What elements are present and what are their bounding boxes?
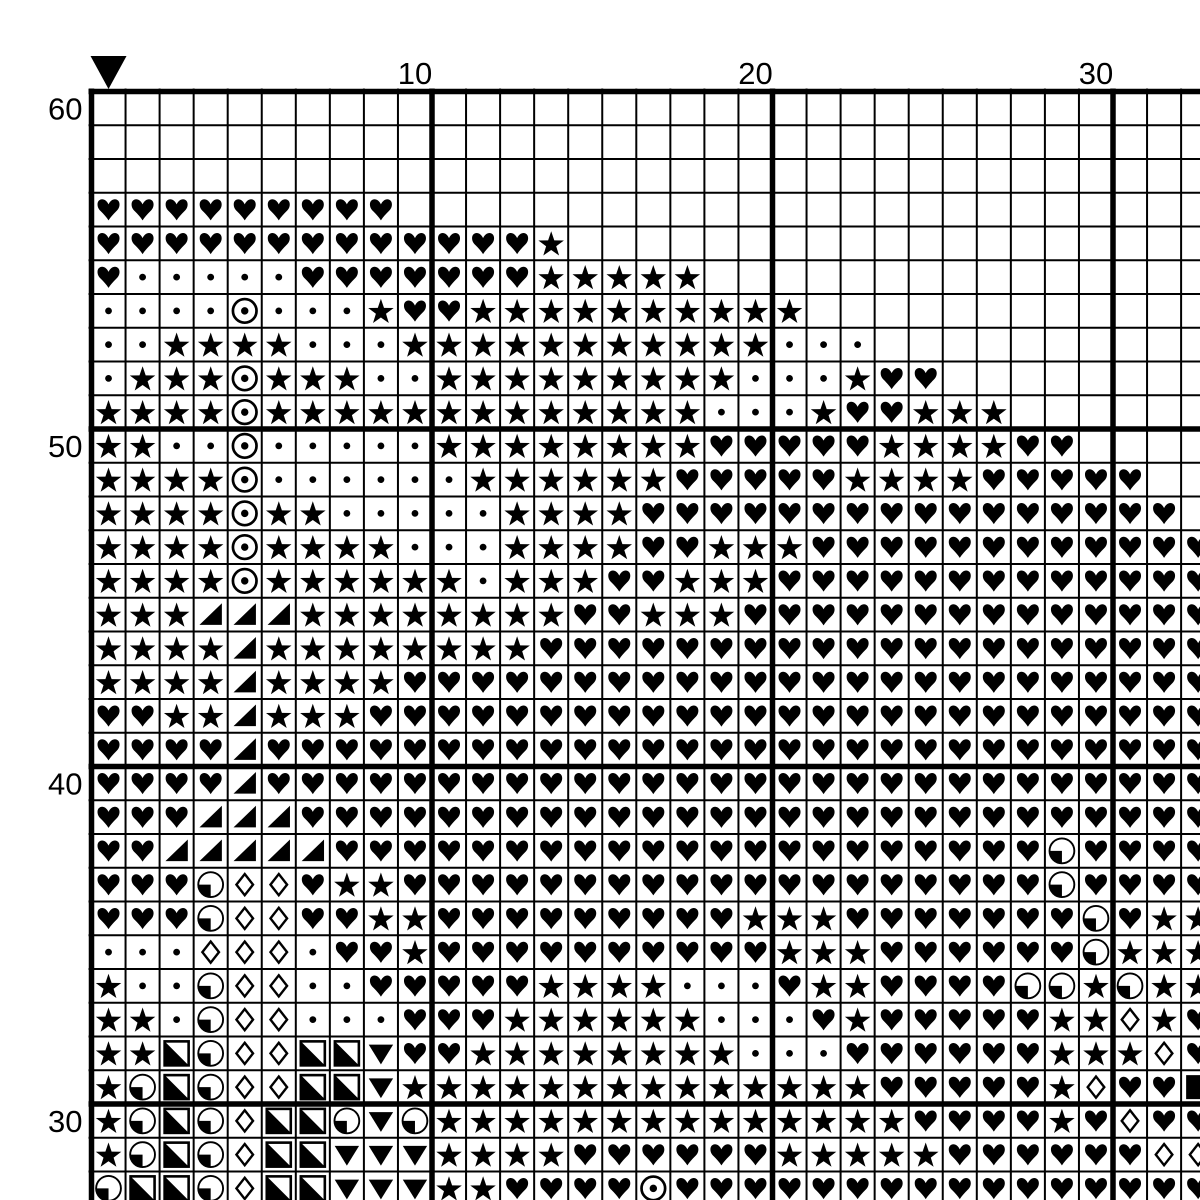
black-star-icon [96, 974, 122, 998]
black-star-icon [96, 535, 122, 559]
black-heart-icon [574, 705, 596, 726]
black-heart-icon [847, 840, 869, 861]
dot-icon [343, 341, 350, 348]
black-heart-icon [574, 840, 596, 861]
black-heart-icon [472, 975, 494, 996]
black-heart-icon [813, 469, 835, 490]
black-star-icon [709, 603, 735, 627]
black-star-icon [1083, 1008, 1109, 1032]
black-heart-icon [676, 705, 698, 726]
black-star-icon [130, 603, 156, 627]
black-heart-icon [574, 942, 596, 963]
black-heart-icon [1153, 1178, 1175, 1199]
black-heart-icon [200, 199, 222, 220]
dot-icon [820, 375, 827, 382]
black-heart-icon [302, 773, 324, 794]
black-star-icon [504, 400, 530, 424]
black-heart-icon [915, 840, 937, 861]
black-heart-icon [642, 942, 664, 963]
black-heart-icon [1085, 570, 1107, 591]
black-star-icon [573, 1075, 599, 1099]
black-star-icon [334, 400, 360, 424]
circle-lower-left-quadrant-black-icon [334, 1121, 346, 1133]
black-star-icon [164, 501, 190, 525]
black-heart-icon [438, 807, 460, 828]
dot-icon [378, 510, 385, 517]
black-heart-icon [98, 199, 120, 220]
black-heart-icon [98, 705, 120, 726]
black-star-icon [198, 535, 224, 559]
black-heart-icon [881, 570, 903, 591]
black-heart-icon [949, 537, 971, 558]
black-star-icon [573, 1008, 599, 1032]
black-heart-icon [779, 570, 801, 591]
black-heart-icon [983, 840, 1005, 861]
black-heart-icon [676, 1144, 698, 1165]
black-heart-icon [302, 908, 324, 929]
black-heart-icon [1051, 807, 1073, 828]
circle-lower-left-quadrant-black-icon [1050, 885, 1062, 897]
black-heart-icon [676, 503, 698, 524]
circled-dot-icon [241, 577, 248, 584]
black-heart-icon [608, 1144, 630, 1165]
black-heart-icon [710, 908, 732, 929]
black-heart-icon [1153, 503, 1175, 524]
dot-icon [446, 510, 453, 517]
circle-lower-left-quadrant-black-icon [130, 1155, 142, 1167]
black-heart-icon [949, 1110, 971, 1131]
black-heart-icon [779, 638, 801, 659]
black-lower-right-triangle-icon [302, 839, 324, 861]
black-heart-icon [983, 807, 1005, 828]
circle-lower-left-quadrant-black-icon [198, 918, 210, 930]
black-down-triangle-icon [369, 1112, 393, 1132]
black-star-icon [709, 535, 735, 559]
black-star-icon [1117, 1041, 1143, 1065]
black-star-icon [607, 1041, 633, 1065]
black-heart-icon [506, 975, 528, 996]
black-heart-icon [676, 638, 698, 659]
black-heart-icon [642, 840, 664, 861]
black-heart-icon [608, 1178, 630, 1199]
circle-lower-left-quadrant-black-icon [1050, 986, 1062, 998]
black-heart-icon [983, 739, 1005, 760]
black-heart-icon [98, 267, 120, 288]
black-heart-icon [234, 199, 256, 220]
black-heart-icon [200, 773, 222, 794]
black-star-icon [368, 906, 394, 930]
black-heart-icon [983, 975, 1005, 996]
black-heart-icon [949, 672, 971, 693]
black-heart-icon [268, 773, 290, 794]
black-star-icon [470, 1075, 496, 1099]
dot-icon [752, 409, 759, 416]
black-heart-icon [813, 503, 835, 524]
black-star-icon [777, 1075, 803, 1099]
black-heart-icon [302, 267, 324, 288]
white-diamond-icon [236, 975, 253, 996]
black-star-icon [538, 468, 564, 492]
black-heart-icon [1017, 638, 1039, 659]
black-star-icon [607, 434, 633, 458]
black-heart-icon [404, 300, 426, 321]
black-heart-icon [676, 874, 698, 895]
black-heart-icon [813, 705, 835, 726]
black-heart-icon [1119, 570, 1141, 591]
black-star-icon [641, 974, 667, 998]
black-heart-icon [472, 908, 494, 929]
black-star-icon [368, 569, 394, 593]
black-heart-icon [1119, 537, 1141, 558]
black-heart-icon [949, 739, 971, 760]
black-heart-icon [779, 840, 801, 861]
black-star-icon [436, 569, 462, 593]
dot-icon [207, 307, 214, 314]
black-star-icon [573, 1041, 599, 1065]
black-heart-icon [1119, 773, 1141, 794]
black-heart-icon [983, 672, 1005, 693]
white-diamond-icon [236, 1077, 253, 1098]
black-heart-icon [1017, 672, 1039, 693]
circle-lower-left-quadrant-black-icon [198, 1020, 210, 1032]
black-heart-icon [949, 908, 971, 929]
black-heart-icon [574, 874, 596, 895]
black-lower-right-triangle-icon [268, 806, 290, 828]
black-star-icon [402, 400, 428, 424]
black-heart-icon [438, 672, 460, 693]
black-heart-icon [370, 199, 392, 220]
black-heart-icon [949, 570, 971, 591]
black-star-icon [879, 1109, 905, 1133]
black-star-icon [607, 1109, 633, 1133]
black-heart-icon [608, 874, 630, 895]
black-heart-icon [1153, 874, 1175, 895]
black-heart-icon [370, 975, 392, 996]
black-star-icon [607, 468, 633, 492]
black-heart-icon [302, 233, 324, 254]
black-heart-icon [1017, 840, 1039, 861]
black-star-icon [504, 569, 530, 593]
black-heart-icon [506, 739, 528, 760]
black-heart-icon [1153, 537, 1175, 558]
black-heart-icon [1051, 469, 1073, 490]
black-heart-icon [949, 503, 971, 524]
black-star-icon [266, 366, 292, 390]
dot-icon [752, 375, 759, 382]
black-star-icon [573, 974, 599, 998]
black-heart-icon [1187, 807, 1200, 828]
black-heart-icon [983, 1043, 1005, 1064]
black-heart-icon [1017, 908, 1039, 929]
black-star-icon [504, 1041, 530, 1065]
black-heart-icon [438, 908, 460, 929]
black-star-icon [1049, 1109, 1075, 1133]
black-star-icon [675, 434, 701, 458]
white-diamond-icon [236, 942, 253, 963]
dot-icon [105, 949, 112, 956]
black-star-icon [538, 333, 564, 357]
black-heart-icon [744, 773, 766, 794]
column-label: 20 [738, 56, 772, 91]
circle-lower-left-quadrant-black-icon [198, 1188, 210, 1200]
black-star-icon [538, 501, 564, 525]
black-heart-icon [983, 1144, 1005, 1165]
black-star-icon [96, 1008, 122, 1032]
black-heart-icon [676, 807, 698, 828]
black-heart-icon [506, 1178, 528, 1199]
black-heart-icon [1085, 672, 1107, 693]
black-heart-icon [813, 773, 835, 794]
black-star-icon [504, 1143, 530, 1167]
black-heart-icon [1017, 1110, 1039, 1131]
black-heart-icon [710, 435, 732, 456]
black-star-icon [709, 299, 735, 323]
black-star-icon [811, 940, 837, 964]
dot-icon [309, 982, 316, 989]
black-star-icon [470, 603, 496, 627]
black-star-icon [607, 974, 633, 998]
black-heart-icon [881, 1043, 903, 1064]
black-heart-icon [779, 604, 801, 625]
black-heart-icon [1085, 1144, 1107, 1165]
black-star-icon [504, 434, 530, 458]
black-heart-icon [949, 604, 971, 625]
black-star-icon [641, 434, 667, 458]
dot-icon [480, 577, 487, 584]
black-star-icon [300, 400, 326, 424]
black-heart-icon [744, 1144, 766, 1165]
black-star-icon [164, 535, 190, 559]
black-heart-icon [881, 942, 903, 963]
black-heart-icon [1017, 1144, 1039, 1165]
black-star-icon [96, 1041, 122, 1065]
black-star-icon [504, 501, 530, 525]
white-diamond-icon [270, 1043, 287, 1064]
black-heart-icon [608, 638, 630, 659]
black-heart-icon [915, 908, 937, 929]
black-heart-icon [676, 840, 698, 861]
black-star-icon [743, 535, 769, 559]
dot-icon [139, 341, 146, 348]
black-star-icon [845, 974, 871, 998]
dot-icon [412, 544, 419, 551]
black-heart-icon [234, 233, 256, 254]
black-star-icon [300, 636, 326, 660]
black-heart-icon [847, 874, 869, 895]
black-heart-icon [336, 739, 358, 760]
black-star-icon [130, 501, 156, 525]
black-heart-icon [472, 267, 494, 288]
black-heart-icon [915, 942, 937, 963]
black-heart-icon [1187, 874, 1200, 895]
black-star-icon [436, 1143, 462, 1167]
black-star-icon [675, 569, 701, 593]
black-star-icon [811, 1109, 837, 1133]
black-heart-icon [1017, 435, 1039, 456]
black-heart-icon [574, 638, 596, 659]
black-heart-icon [1119, 503, 1141, 524]
black-star-icon [402, 333, 428, 357]
black-star-icon [1049, 1075, 1075, 1099]
circled-dot-icon [241, 307, 248, 314]
black-heart-icon [1051, 1144, 1073, 1165]
black-heart-icon [1051, 570, 1073, 591]
black-heart-icon [472, 874, 494, 895]
black-heart-icon [1187, 1009, 1200, 1030]
black-heart-icon [1119, 672, 1141, 693]
black-star-icon [573, 468, 599, 492]
black-heart-icon [336, 773, 358, 794]
black-star-icon [709, 366, 735, 390]
black-heart-icon [676, 469, 698, 490]
black-star-icon [130, 1008, 156, 1032]
black-heart-icon [1085, 807, 1107, 828]
black-heart-icon [813, 604, 835, 625]
black-star-icon [743, 1109, 769, 1133]
black-heart-icon [915, 503, 937, 524]
black-heart-icon [608, 672, 630, 693]
dot-icon [309, 1016, 316, 1023]
black-square-icon [1186, 1075, 1200, 1099]
black-heart-icon [438, 874, 460, 895]
white-diamond-icon [270, 975, 287, 996]
black-star-icon [402, 906, 428, 930]
black-star-icon [573, 569, 599, 593]
black-heart-icon [1051, 1178, 1073, 1199]
black-heart-icon [710, 1144, 732, 1165]
black-down-triangle-icon [369, 1045, 393, 1065]
black-heart-icon [540, 773, 562, 794]
dot-icon [139, 274, 146, 281]
black-heart-icon [370, 840, 392, 861]
black-heart-icon [881, 874, 903, 895]
black-down-triangle-icon [369, 1146, 393, 1166]
black-heart-icon [166, 908, 188, 929]
dot-icon [173, 442, 180, 449]
black-star-icon [675, 333, 701, 357]
black-star-icon [641, 603, 667, 627]
black-heart-icon [710, 1178, 732, 1199]
black-lower-right-triangle-icon [234, 671, 256, 693]
black-star-icon [198, 468, 224, 492]
black-star-icon [879, 468, 905, 492]
black-star-icon [1117, 940, 1143, 964]
black-heart-icon [983, 469, 1005, 490]
row-label: 30 [48, 1104, 82, 1139]
black-star-icon [504, 603, 530, 627]
black-star-icon [300, 501, 326, 525]
dot-icon [105, 307, 112, 314]
black-heart-icon [336, 908, 358, 929]
black-heart-icon [608, 570, 630, 591]
black-heart-icon [1017, 739, 1039, 760]
black-star-icon [981, 400, 1007, 424]
black-heart-icon [1187, 840, 1200, 861]
black-heart-icon [983, 604, 1005, 625]
black-heart-icon [1085, 503, 1107, 524]
black-heart-icon [506, 267, 528, 288]
black-heart-icon [506, 807, 528, 828]
black-star-icon [845, 468, 871, 492]
black-star-icon [334, 670, 360, 694]
black-heart-icon [949, 638, 971, 659]
black-heart-icon [1187, 1110, 1200, 1131]
dot-icon [309, 442, 316, 449]
black-star-icon [607, 265, 633, 289]
circle-lower-left-quadrant-black-icon [1118, 986, 1130, 998]
black-heart-icon [813, 807, 835, 828]
black-star-icon [641, 333, 667, 357]
black-star-icon [96, 1143, 122, 1167]
black-star-icon [266, 636, 292, 660]
dot-icon [820, 341, 827, 348]
black-star-icon [334, 603, 360, 627]
black-heart-icon [608, 942, 630, 963]
black-heart-icon [744, 503, 766, 524]
black-heart-icon [881, 807, 903, 828]
circled-dot-icon [650, 1185, 657, 1192]
black-star-icon [675, 1109, 701, 1133]
black-star-icon [607, 333, 633, 357]
black-heart-icon [608, 739, 630, 760]
circle-lower-left-quadrant-black-icon [130, 1121, 142, 1133]
black-heart-icon [1119, 1077, 1141, 1098]
black-heart-icon [949, 1009, 971, 1030]
black-down-triangle-icon [335, 1146, 359, 1166]
black-star-icon [573, 535, 599, 559]
black-lower-right-triangle-icon [199, 806, 221, 828]
black-star-icon [436, 366, 462, 390]
black-heart-icon [608, 840, 630, 861]
dot-icon [173, 274, 180, 281]
black-star-icon [538, 265, 564, 289]
black-heart-icon [642, 570, 664, 591]
black-heart-icon [915, 874, 937, 895]
black-heart-icon [881, 908, 903, 929]
black-heart-icon [949, 1043, 971, 1064]
circle-lower-left-quadrant-black-icon [198, 1121, 210, 1133]
black-heart-icon [983, 942, 1005, 963]
black-star-icon [709, 333, 735, 357]
black-heart-icon [779, 739, 801, 760]
black-heart-icon [98, 773, 120, 794]
black-heart-icon [302, 199, 324, 220]
black-heart-icon [404, 705, 426, 726]
black-star-icon [675, 265, 701, 289]
dot-icon [139, 307, 146, 314]
black-heart-icon [98, 233, 120, 254]
dot-icon [378, 476, 385, 483]
black-star-icon [470, 366, 496, 390]
black-star-icon [709, 1041, 735, 1065]
black-heart-icon [472, 739, 494, 760]
black-heart-icon [200, 233, 222, 254]
black-lower-right-triangle-icon [234, 806, 256, 828]
black-star-icon [1151, 1008, 1177, 1032]
dot-icon [173, 1016, 180, 1023]
black-heart-icon [438, 975, 460, 996]
black-heart-icon [915, 705, 937, 726]
black-heart-icon [779, 1178, 801, 1199]
black-star-icon [607, 501, 633, 525]
black-heart-icon [472, 773, 494, 794]
dot-icon [752, 982, 759, 989]
black-heart-icon [813, 638, 835, 659]
black-star-icon [538, 974, 564, 998]
dot-icon [173, 949, 180, 956]
black-heart-icon [1017, 807, 1039, 828]
dot-icon [752, 1050, 759, 1057]
